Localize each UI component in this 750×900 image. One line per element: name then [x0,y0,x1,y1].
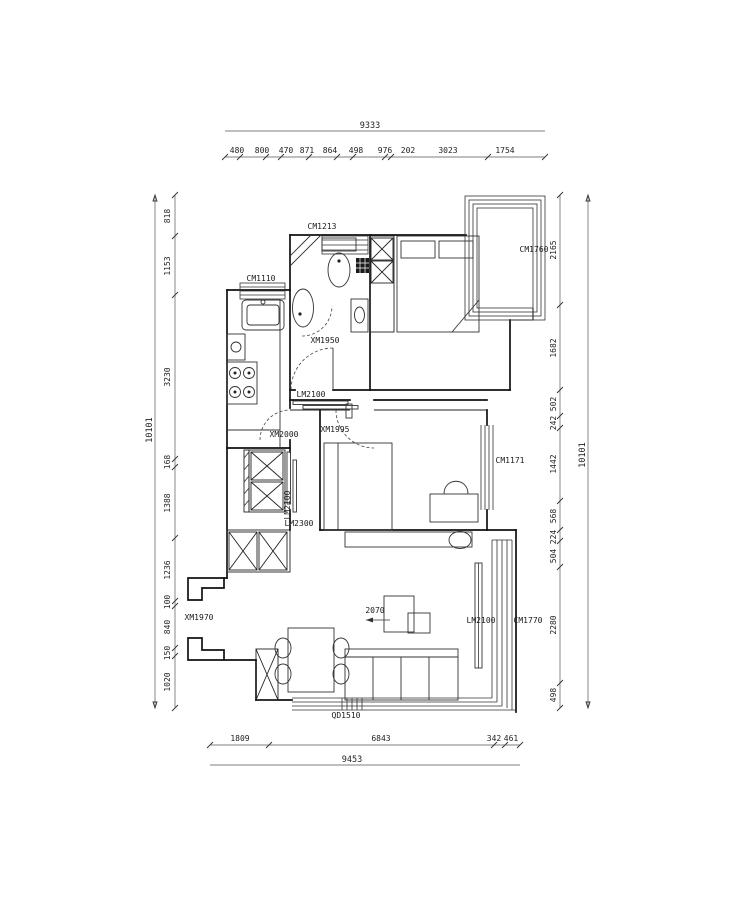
dim-left-0: 818 [163,209,172,224]
dim-bottom-2: 342 [487,734,502,743]
dim-top-5: 498 [349,146,364,155]
dim-left-4: 1388 [163,493,172,512]
dim-top-1: 800 [255,146,270,155]
entry-step-upper [188,578,224,600]
sofa-dimension-callout [366,618,390,623]
dimension-chain-left: 10101 818 1153 3230 168 1388 1236 100 84… [145,192,178,711]
dim-total-bottom: 9453 [342,755,362,765]
label-lm2100-hall: LM2100 [297,390,326,399]
dim-left-5: 1236 [163,560,172,579]
label-xm2000: XM2000 [270,430,299,439]
dimension-chain-right: 10101 2165 1682 502 242 1442 568 224 504… [549,192,590,711]
dim-top-6: 976 [378,146,393,155]
dim-top-8: 3023 [438,146,457,155]
dim-top-0: 480 [230,146,245,155]
dim-right-3: 242 [549,416,558,431]
label-xm1970: XM1970 [185,613,214,622]
dim-top-2: 470 [279,146,294,155]
sofa [345,649,458,700]
desk [430,494,478,522]
dim-right-9: 498 [549,688,558,703]
dim-right-0: 2165 [549,240,558,259]
dim-top-4: 864 [323,146,338,155]
dim-left-9: 1020 [163,672,172,691]
dim-total-right: 10101 [578,442,588,468]
floor-plan-drawing: 9333 480 800 470 871 864 498 976 202 302… [0,0,750,900]
bathtub [293,289,314,327]
label-cm1110: CM1110 [247,274,276,283]
door-xm1950-swing [291,348,333,390]
bay-window-top-right [465,196,545,320]
kitchen-shelf [227,334,245,360]
dim-right-2: 502 [549,397,558,412]
dim-total-left: 10101 [145,417,155,443]
bed-single [324,443,392,530]
window-cm1110-hatch [240,283,285,299]
vanity-basin [351,299,368,332]
label-xm1995: XM1995 [321,425,350,434]
bathroom [290,235,369,332]
tv-cabinet [345,532,472,549]
dim-top-3: 871 [300,146,315,155]
living-dining [275,532,472,701]
dim-bottom-0: 1809 [230,734,249,743]
bath-cabinet-swing [302,306,332,336]
wardrobe-bedroom1 [370,236,394,332]
label-qd1510: QD1510 [332,711,361,720]
dimension-chain-bottom: 1809 6843 342 461 9453 [207,734,523,765]
label-xm1950: XM1950 [311,336,340,345]
label-cm1213: CM1213 [308,222,337,231]
dim-total-top: 9333 [360,121,380,131]
chair [444,481,468,494]
dim-right-1: 1682 [549,338,558,357]
dim-right-8: 2280 [549,615,558,634]
dim-top-9: 1754 [495,146,514,155]
dim-right-6: 224 [549,530,558,545]
kitchen [227,300,284,448]
window-cm1171 [481,425,493,510]
kitchen-stove [227,362,257,404]
dim-bottom-3: 461 [504,734,519,743]
dim-left-6: 100 [163,595,172,610]
dim-left-8: 150 [163,646,172,661]
bedroom-top [397,236,479,332]
kitchen-sink [242,300,284,330]
dimension-chain-top: 9333 480 800 470 871 864 498 976 202 302… [222,121,548,160]
corner-shelf [290,235,321,266]
dim-left-3: 168 [163,455,172,470]
windows [240,196,545,710]
dim-left-7: 840 [163,620,172,635]
dim-top-7: 202 [401,146,416,155]
closets [227,236,394,700]
entry-closet-lm2300 [227,530,290,572]
label-cm1171: CM1171 [496,456,525,465]
dim-right-4: 1442 [549,454,558,473]
floor-drain [356,258,369,273]
hall-closet [244,450,285,512]
dim-left-2: 3230 [163,367,172,386]
dim-right-5: 568 [549,509,558,524]
label-cm1770: CM1770 [514,616,543,625]
entry-step-lower [188,638,224,660]
dim-left-1: 1153 [163,256,172,275]
dim-right-7: 504 [549,549,558,564]
label-sofa-width: 2070 [365,606,384,615]
door-lm2100-hall-slider [293,401,358,409]
balcony-window-right [492,540,512,710]
bed-double [397,236,479,332]
coffee-table [384,596,430,633]
label-lm2300: LM2300 [285,519,314,528]
bedroom-middle [324,443,478,530]
label-cm1760: CM1760 [520,245,549,254]
component-labels: CM1213 CM1110 CM1760 XM1950 LM2100 XM200… [185,222,549,720]
dining-set [275,628,349,692]
floor-plan-page: 9333 480 800 470 871 864 498 976 202 302… [0,0,750,900]
label-lm2100-closet: LM2100 [283,490,292,519]
dim-bottom-1: 6843 [371,734,390,743]
label-lm2100-balcony: LM2100 [467,616,496,625]
